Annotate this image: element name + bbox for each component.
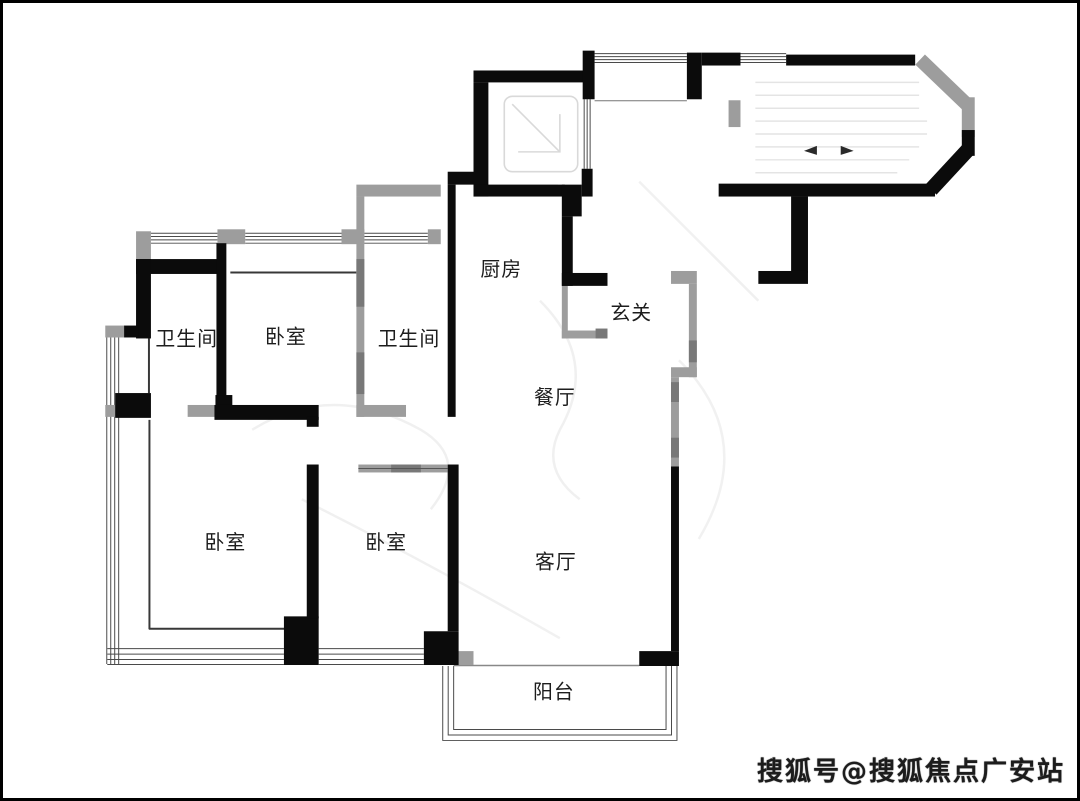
wall-gray-segment <box>105 326 125 338</box>
stair-treads <box>755 82 927 172</box>
wall-pier <box>687 53 702 100</box>
elevator-diagonal-line <box>512 104 560 152</box>
right-wall-gray <box>689 284 697 377</box>
room-label-dining: 餐厅 <box>534 386 576 409</box>
wall-gray-dark-segment <box>596 329 608 339</box>
wall-segment <box>562 185 582 217</box>
faint-watermark-remnants <box>252 182 758 639</box>
elevator-wall <box>474 70 593 82</box>
wall-gray-dark-segment <box>671 438 679 458</box>
wall-gray-dark-segment <box>356 352 364 394</box>
elevator-wall <box>474 82 489 196</box>
floor-plan-image: 厨房 玄关 卫生间 卧室 卫生间 餐厅 卧室 卧室 客厅 阳台 搜狐号@搜狐焦点… <box>0 0 1080 801</box>
wall-gray-post <box>217 229 245 244</box>
source-watermark: 搜狐号@搜狐焦点广安站 <box>757 751 1065 788</box>
wall-segment <box>448 465 459 632</box>
wall-segment <box>214 405 318 420</box>
living-right-wall <box>671 467 679 652</box>
room-label-bedroom-left: 卧室 <box>205 531 247 554</box>
wall-gray-dark-segment <box>356 259 364 307</box>
right-wall-gray-cap <box>671 271 697 284</box>
wall-gray-stub <box>729 100 741 127</box>
wall-segment <box>307 417 319 427</box>
faint-curve <box>639 182 758 301</box>
floor-plan-drawing: 厨房 玄关 卫生间 卧室 卫生间 餐厅 卧室 卧室 客厅 阳台 <box>3 3 1077 798</box>
window-band-left <box>107 337 119 664</box>
wall-segment <box>307 465 319 619</box>
window-band-bottom <box>107 649 424 665</box>
chamfer-black-diagonal <box>931 150 968 190</box>
wall-segment <box>124 326 138 338</box>
wall-gray-post <box>428 229 441 244</box>
faint-curve <box>679 360 724 539</box>
window-band-top <box>151 233 428 243</box>
room-labels: 厨房 玄关 卫生间 卧室 卫生间 餐厅 卧室 卧室 客厅 阳台 <box>155 258 652 704</box>
wall-segment <box>639 651 679 666</box>
stairwell-bottom-wall <box>719 184 935 197</box>
wall-pier <box>424 631 459 665</box>
wall-gray-dark-segment <box>689 340 697 362</box>
room-label-bedroom-mid: 卧室 <box>365 531 407 554</box>
room-label-entry: 玄关 <box>610 302 652 325</box>
wall-segment <box>448 185 456 417</box>
elevator-wall <box>474 185 565 197</box>
stairwell-top-wall <box>786 55 915 66</box>
room-label-bathroom-mid: 卫生间 <box>378 327 441 350</box>
elevator-wall <box>582 169 593 197</box>
window-bands <box>107 54 786 665</box>
chamfer-gray-diagonal <box>920 60 969 107</box>
thin-walls <box>149 272 356 629</box>
walls-gray <box>105 97 974 665</box>
entry-top-wall <box>562 273 608 286</box>
wall-gray-segment <box>188 405 216 417</box>
wall-pier <box>284 616 319 665</box>
wall-segment <box>216 243 226 418</box>
room-label-bathroom-top: 卫生间 <box>155 327 218 350</box>
bathroom-bottom-gray-wall <box>356 405 406 417</box>
hall-wall <box>791 197 808 273</box>
right-wall-gray-step <box>671 367 697 377</box>
room-label-living: 客厅 <box>535 551 577 574</box>
wall-gray-post <box>136 231 151 263</box>
faint-curve <box>302 499 560 638</box>
wall-gray-dark-segment <box>671 382 679 402</box>
room-label-bedroom-top: 卧室 <box>265 325 307 348</box>
hall-wall <box>758 271 808 284</box>
wall-segment <box>136 259 151 338</box>
elevator-symbol <box>504 96 577 171</box>
wall-segment <box>702 53 741 66</box>
wall-pier <box>115 393 151 418</box>
bathroom-top-gray-wall <box>356 185 440 197</box>
room-label-kitchen: 厨房 <box>480 258 522 281</box>
elevator-door-lines <box>584 99 590 168</box>
room-label-balcony: 阳台 <box>533 681 575 704</box>
faint-curve <box>252 405 448 509</box>
elevator-wall <box>583 51 595 100</box>
